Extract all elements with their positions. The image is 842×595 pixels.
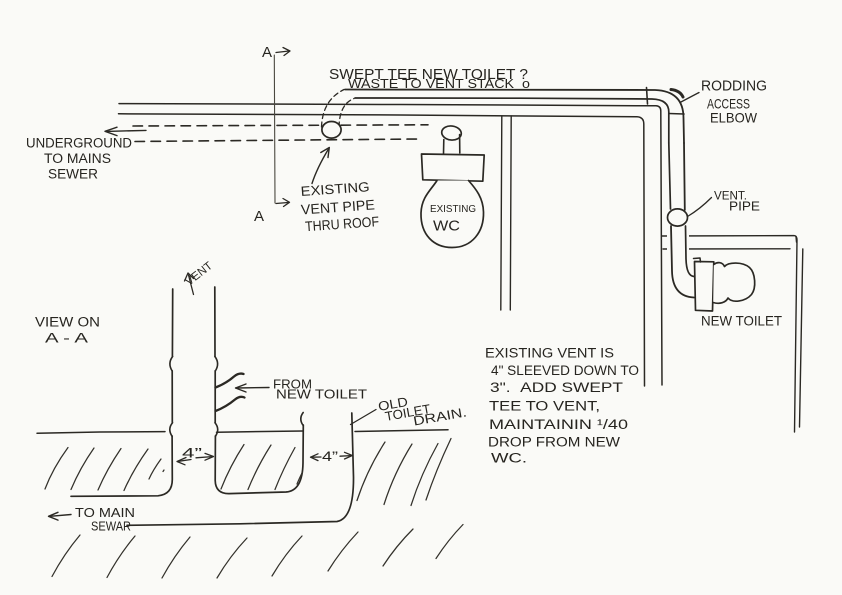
svg-text:A - A: A - A — [45, 331, 88, 346]
svg-text:TEE TO VENT,: TEE TO VENT, — [489, 399, 600, 414]
svg-text:3". ADD SWEPT: 3". ADD SWEPT — [490, 380, 623, 395]
svg-text:RODDING: RODDING — [701, 79, 767, 95]
svg-text:WASTE TO VENT STACK o: WASTE TO VENT STACK o — [348, 76, 530, 91]
svg-text:ELBOW: ELBOW — [710, 110, 758, 126]
svg-text:EXISTING VENT IS: EXISTING VENT IS — [485, 346, 614, 361]
svg-text:WC: WC — [433, 218, 460, 235]
svg-text:A: A — [254, 208, 264, 225]
svg-text:PIPE: PIPE — [729, 200, 760, 214]
svg-text:TO MAIN: TO MAIN — [75, 505, 135, 520]
svg-text:SEWAR: SEWAR — [91, 520, 131, 534]
svg-text:UNDERGROUND: UNDERGROUND — [26, 136, 132, 151]
svg-text:4”: 4” — [322, 449, 338, 464]
svg-text:4”: 4” — [182, 446, 202, 461]
svg-text:DROP FROM NEW: DROP FROM NEW — [488, 435, 620, 450]
svg-text:NEW TOILET: NEW TOILET — [276, 388, 367, 402]
svg-text:EXISTING: EXISTING — [430, 203, 476, 215]
svg-text:MAINTAININ ¹/40: MAINTAININ ¹/40 — [489, 417, 628, 432]
svg-text:SEWER: SEWER — [48, 167, 98, 182]
svg-text:VIEW ON: VIEW ON — [35, 315, 100, 330]
svg-text:4" SLEEVED DOWN TO: 4" SLEEVED DOWN TO — [491, 363, 639, 378]
svg-text:TO MAINS: TO MAINS — [44, 151, 111, 166]
svg-text:WC.: WC. — [491, 451, 527, 466]
svg-text:A: A — [262, 44, 272, 61]
svg-text:NEW TOILET: NEW TOILET — [701, 313, 782, 329]
